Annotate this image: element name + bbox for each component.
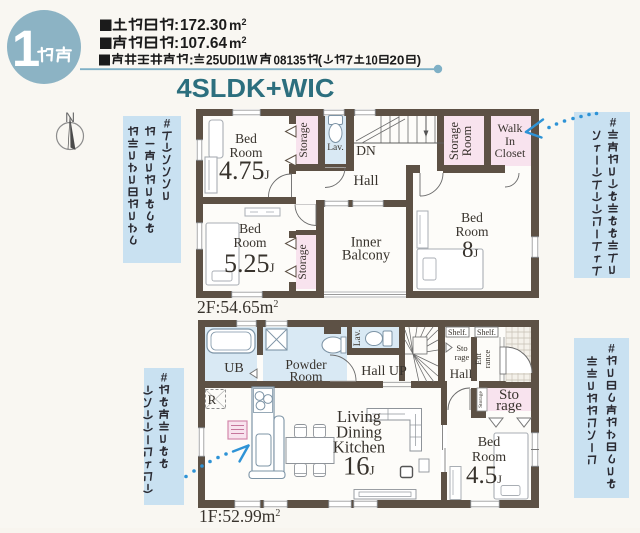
svg-text:25UDI1W: 25UDI1W	[206, 53, 258, 68]
svg-text:Storage: Storage	[478, 391, 484, 408]
svg-text::: :	[189, 52, 194, 68]
svg-text:Walk: Walk	[497, 121, 522, 135]
svg-text:Balcony: Balcony	[342, 248, 391, 264]
svg-text:Room: Room	[460, 125, 474, 156]
svg-text:Room: Room	[289, 369, 323, 384]
svg-text:(: (	[318, 53, 323, 68]
svg-text:Bed: Bed	[478, 435, 501, 450]
svg-text:UB: UB	[224, 361, 243, 376]
svg-text:R: R	[208, 392, 217, 407]
svg-text:Lav.: Lav.	[327, 143, 344, 153]
svg-text:20: 20	[389, 53, 404, 68]
svg-text:Bed: Bed	[461, 210, 483, 225]
svg-text:4.75J: 4.75J	[219, 156, 270, 185]
svg-text:Storage: Storage	[298, 122, 310, 157]
svg-text:2F:54.65m2: 2F:54.65m2	[197, 297, 278, 317]
svg-text:4SLDK+WIC: 4SLDK+WIC	[177, 75, 335, 103]
svg-text:Storage: Storage	[297, 244, 309, 279]
svg-text:Storage: Storage	[447, 121, 461, 160]
svg-text:08135: 08135	[274, 53, 307, 68]
svg-text:#: #	[164, 117, 171, 131]
svg-text:172.30: 172.30	[180, 17, 227, 34]
svg-text:#: #	[161, 371, 168, 385]
svg-text::: :	[174, 35, 179, 52]
svg-text:10: 10	[365, 53, 378, 68]
svg-text:4.5J: 4.5J	[466, 462, 502, 489]
svg-text:Hall: Hall	[450, 366, 473, 381]
svg-text:): )	[417, 53, 421, 68]
svg-text:Shelf.: Shelf.	[477, 328, 496, 337]
svg-text::: :	[174, 17, 179, 34]
svg-text:7: 7	[346, 53, 353, 68]
svg-text:DN: DN	[356, 143, 376, 158]
svg-text:Hall: Hall	[354, 173, 379, 189]
svg-text:#: #	[608, 342, 615, 356]
svg-text:#: #	[610, 116, 617, 130]
svg-text:1F:52.99m2: 1F:52.99m2	[199, 506, 280, 526]
svg-text:Bed: Bed	[235, 131, 257, 146]
svg-text:Lav.: Lav.	[353, 330, 363, 347]
svg-text:rance: rance	[482, 350, 492, 369]
svg-text:5.25J: 5.25J	[224, 249, 275, 278]
svg-text:Closet: Closet	[495, 146, 526, 160]
svg-text:1: 1	[12, 20, 40, 77]
svg-text:Room: Room	[233, 235, 267, 250]
svg-text:rage: rage	[496, 398, 522, 414]
svg-text:Shelf.: Shelf.	[448, 328, 467, 337]
svg-text:Bed: Bed	[239, 221, 261, 236]
svg-text:107.64: 107.64	[180, 35, 227, 52]
svg-text:Hall UP: Hall UP	[361, 364, 407, 379]
svg-text:rage: rage	[455, 352, 470, 362]
